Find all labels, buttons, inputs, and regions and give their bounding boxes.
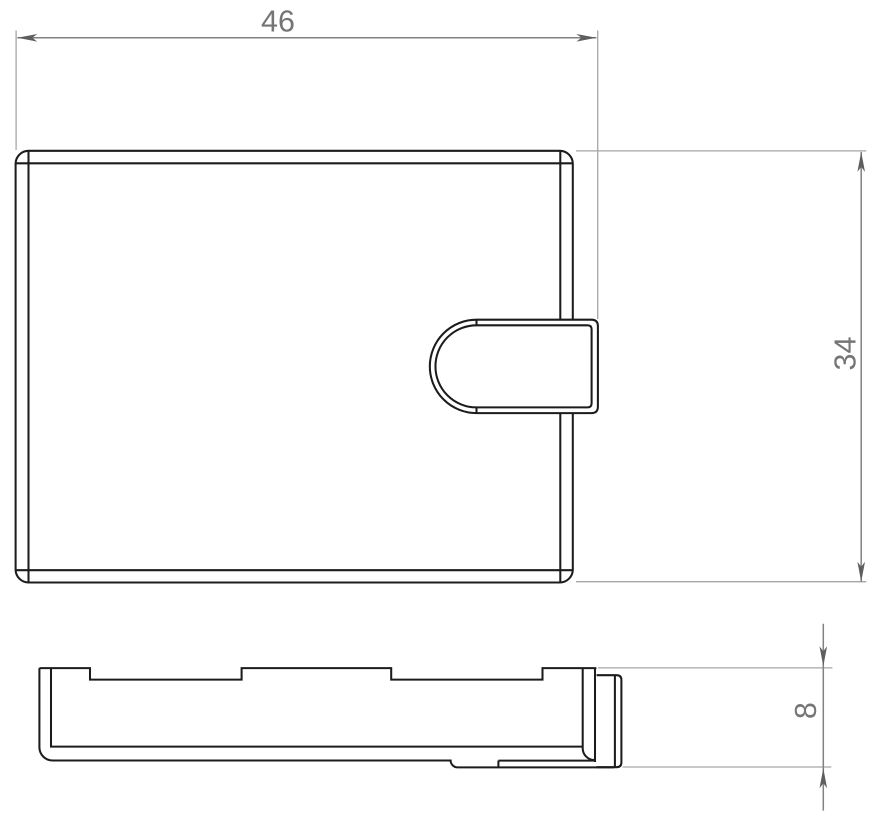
svg-text:8: 8 xyxy=(789,702,823,719)
svg-text:46: 46 xyxy=(261,5,295,39)
svg-text:34: 34 xyxy=(828,337,862,371)
